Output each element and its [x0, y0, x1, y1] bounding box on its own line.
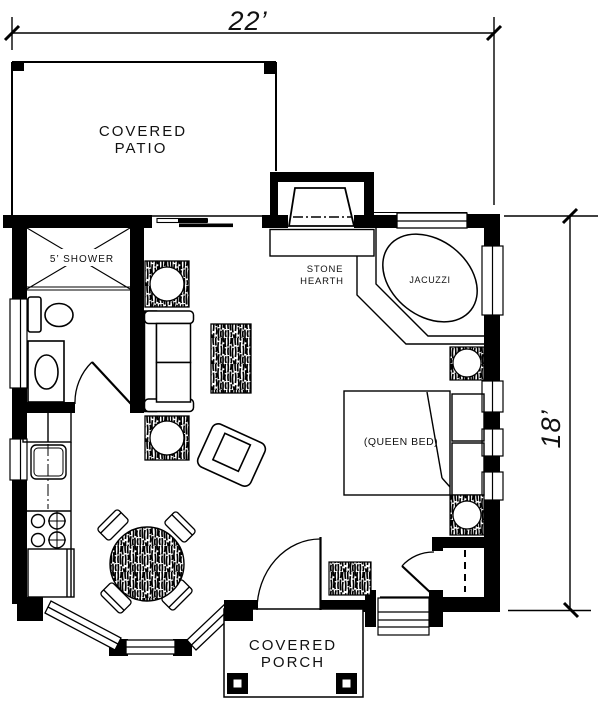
svg-text:22’: 22’	[227, 6, 267, 36]
svg-text:JACUZZI: JACUZZI	[409, 275, 450, 285]
svg-text:HEARTH: HEARTH	[300, 276, 344, 287]
svg-text:STONE: STONE	[307, 264, 344, 275]
svg-text:5’ SHOWER: 5’ SHOWER	[50, 254, 114, 265]
svg-text:18’: 18’	[536, 409, 566, 448]
svg-text:(QUEEN BED): (QUEEN BED)	[364, 436, 438, 448]
svg-text:PORCH: PORCH	[261, 654, 325, 671]
svg-text:COVERED: COVERED	[249, 637, 337, 654]
svg-text:COVERED: COVERED	[99, 123, 187, 140]
svg-text:PATIO: PATIO	[115, 140, 168, 157]
